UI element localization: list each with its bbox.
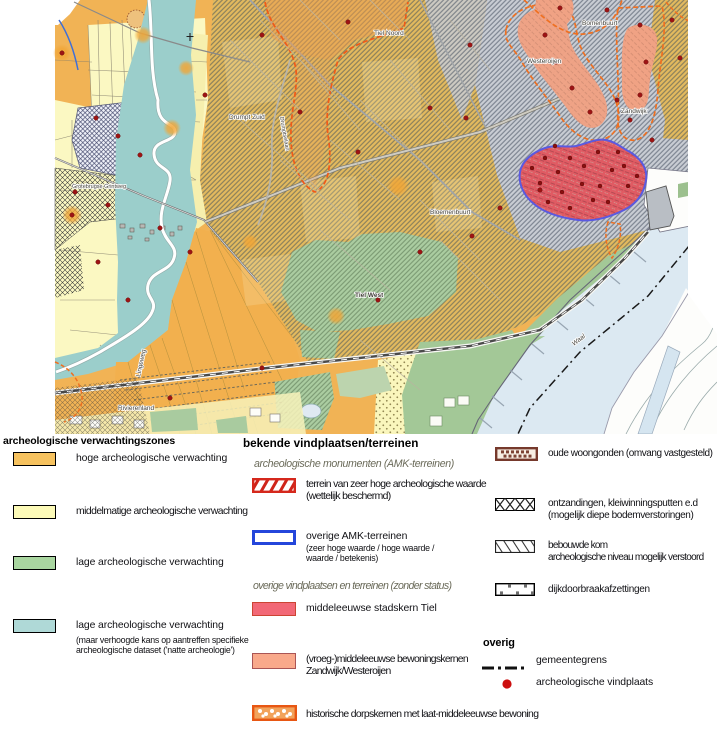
svg-text:Zandwijk: Zandwijk bbox=[621, 108, 647, 115]
svg-text:Tiel Noord: Tiel Noord bbox=[374, 30, 404, 37]
svg-text:Tiel West: Tiel West bbox=[355, 292, 384, 299]
svg-text:Bomenbuurt: Bomenbuurt bbox=[582, 20, 618, 27]
svg-text:Rivierenland: Rivierenland bbox=[118, 405, 155, 412]
svg-text:Grotebrugse Grintweg: Grotebrugse Grintweg bbox=[72, 184, 126, 190]
svg-text:Drumpt Zuid: Drumpt Zuid bbox=[229, 114, 265, 121]
svg-text:Westeroijen: Westeroijen bbox=[527, 58, 562, 65]
svg-text:Bloemenbuurt: Bloemenbuurt bbox=[430, 209, 471, 216]
